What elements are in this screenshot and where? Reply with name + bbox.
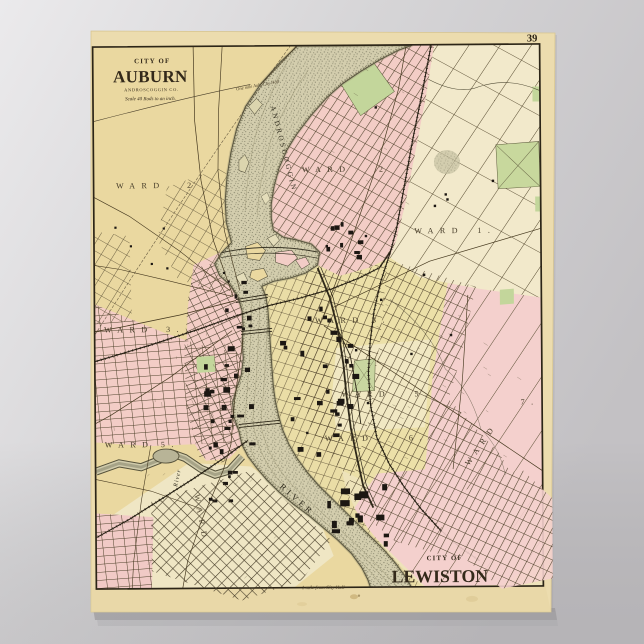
svg-text:1 mile from City Hall: 1 mile from City Hall	[302, 586, 345, 591]
svg-text:2: 2	[187, 181, 198, 190]
svg-text:Scale 40 Rods to an inch.: Scale 40 Rods to an inch.	[125, 97, 176, 102]
svg-text:6.: 6.	[409, 433, 428, 442]
svg-text:ANDROSCOGGIN CO.: ANDROSCOGGIN CO.	[124, 87, 179, 92]
svg-text:WARD: WARD	[414, 226, 464, 235]
svg-text:39: 39	[527, 33, 538, 44]
svg-text:CITY OF: CITY OF	[134, 58, 170, 65]
svg-text:WARD: WARD	[325, 434, 375, 443]
svg-text:WARD: WARD	[342, 389, 392, 398]
svg-text:AUBURN: AUBURN	[113, 67, 188, 87]
svg-text:1.: 1.	[477, 226, 496, 235]
svg-text:2: 2	[379, 164, 390, 173]
svg-text:5.: 5.	[161, 440, 180, 449]
svg-text:3.: 3.	[166, 325, 185, 334]
svg-text:WARD: WARD	[116, 181, 166, 190]
svg-text:WARD: WARD	[105, 440, 155, 449]
svg-text:3.: 3.	[372, 315, 391, 324]
svg-text:CITY OF: CITY OF	[427, 555, 463, 562]
svg-text:WARD: WARD	[315, 316, 365, 325]
svg-text:WARD: WARD	[302, 165, 352, 174]
svg-text:WARD: WARD	[104, 325, 154, 334]
svg-text:7.: 7.	[521, 397, 540, 406]
svg-text:LEWISTON: LEWISTON	[391, 566, 488, 587]
svg-text:5.: 5.	[415, 389, 434, 398]
